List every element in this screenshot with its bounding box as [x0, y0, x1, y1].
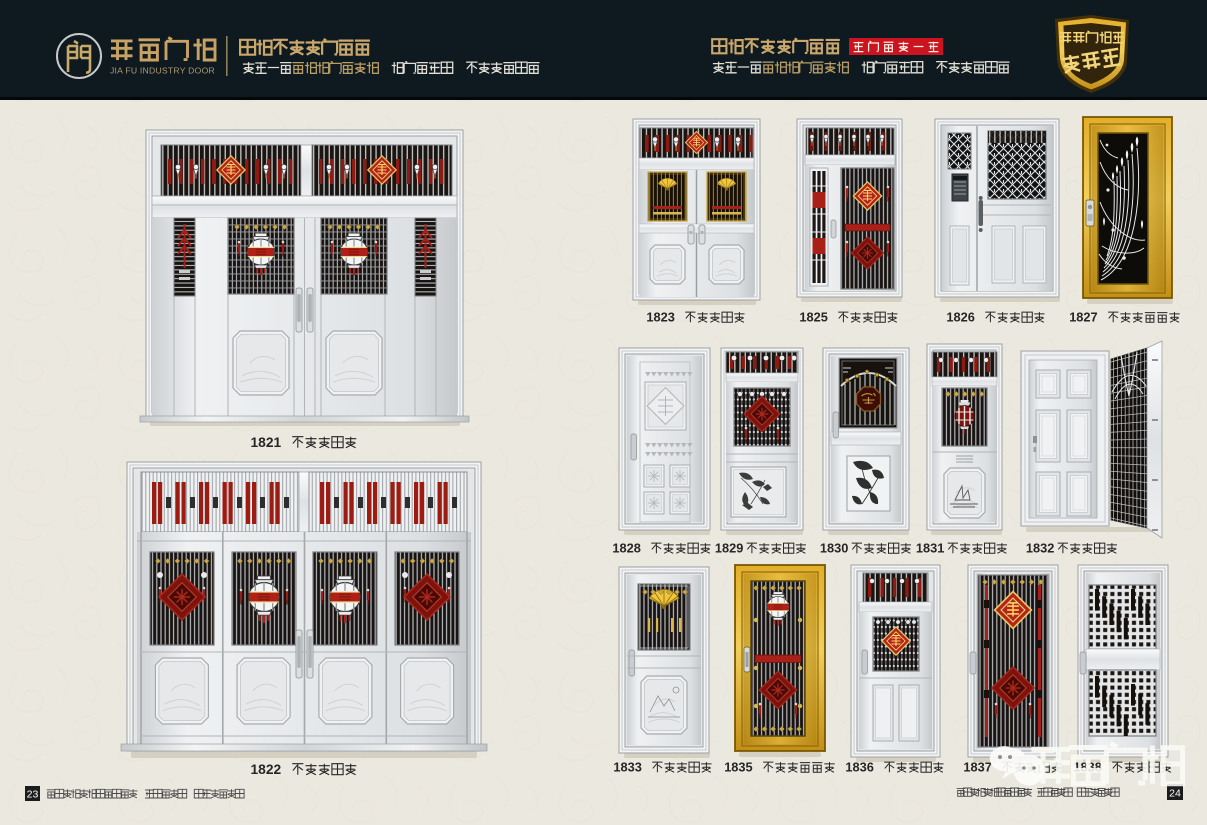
svg-text:1837: 1837	[963, 760, 991, 775]
svg-text:1832: 1832	[1026, 541, 1054, 556]
svg-text:1829: 1829	[715, 541, 743, 556]
svg-text:1835: 1835	[724, 760, 752, 775]
svg-text:1828: 1828	[612, 541, 640, 556]
svg-text:1831: 1831	[916, 541, 944, 556]
svg-text:1821: 1821	[251, 435, 282, 450]
svg-text:1826: 1826	[946, 310, 974, 325]
svg-text:1823: 1823	[646, 310, 674, 325]
svg-text:1822: 1822	[251, 762, 282, 777]
svg-text:JIA FU INDUSTRY DOOR: JIA FU INDUSTRY DOOR	[110, 66, 215, 76]
svg-text:1830: 1830	[820, 541, 848, 556]
svg-text:1836: 1836	[845, 760, 873, 775]
svg-text:24: 24	[1169, 788, 1181, 800]
svg-text:1827: 1827	[1069, 310, 1097, 325]
svg-text:1825: 1825	[799, 310, 827, 325]
svg-text:23: 23	[27, 789, 39, 801]
svg-text:1833: 1833	[613, 760, 641, 775]
